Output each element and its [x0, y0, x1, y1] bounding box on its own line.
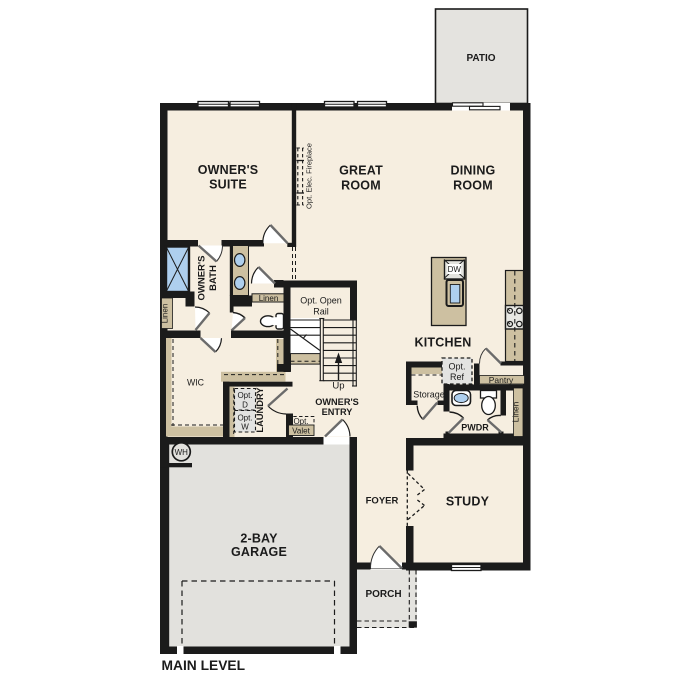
- svg-text:OWNER'S: OWNER'S: [197, 255, 208, 300]
- svg-text:WH: WH: [175, 448, 189, 457]
- svg-text:Opt.: Opt.: [237, 414, 252, 423]
- svg-text:GREAT: GREAT: [339, 164, 383, 178]
- svg-text:SUITE: SUITE: [209, 178, 247, 192]
- svg-text:OWNER'S: OWNER'S: [315, 397, 359, 407]
- svg-text:Rail: Rail: [313, 307, 329, 317]
- svg-text:STUDY: STUDY: [446, 495, 490, 509]
- svg-text:Valet: Valet: [292, 427, 310, 436]
- svg-text:MAIN LEVEL: MAIN LEVEL: [162, 658, 246, 673]
- svg-text:PATIO: PATIO: [466, 53, 495, 64]
- svg-text:ENTRY: ENTRY: [322, 407, 353, 417]
- svg-text:Linen: Linen: [161, 304, 170, 324]
- svg-text:Opt.: Opt.: [448, 362, 465, 372]
- svg-text:Opt. Elec. Fireplace: Opt. Elec. Fireplace: [305, 143, 314, 209]
- svg-text:PWDR: PWDR: [461, 423, 489, 433]
- svg-text:Ref: Ref: [450, 372, 465, 382]
- svg-text:Up: Up: [332, 381, 344, 392]
- svg-text:DINING: DINING: [451, 164, 496, 178]
- svg-text:Storage: Storage: [413, 390, 445, 400]
- svg-text:KITCHEN: KITCHEN: [415, 336, 472, 350]
- svg-text:Opt.: Opt.: [293, 417, 308, 426]
- svg-text:2-BAY: 2-BAY: [240, 532, 278, 546]
- svg-text:WIC: WIC: [187, 378, 205, 388]
- svg-text:ROOM: ROOM: [453, 179, 493, 193]
- svg-text:BATH: BATH: [208, 265, 219, 291]
- svg-text:W: W: [241, 423, 249, 432]
- svg-text:LAUNDRY: LAUNDRY: [255, 387, 265, 433]
- svg-text:PORCH: PORCH: [365, 589, 401, 600]
- svg-text:OWNER'S: OWNER'S: [198, 163, 259, 177]
- svg-text:GARAGE: GARAGE: [231, 545, 287, 559]
- svg-text:DW: DW: [448, 265, 462, 274]
- svg-text:Linen: Linen: [511, 401, 521, 422]
- svg-text:Pantry: Pantry: [489, 375, 514, 385]
- svg-text:Opt. Open: Opt. Open: [300, 296, 342, 306]
- svg-text:ROOM: ROOM: [341, 179, 381, 193]
- svg-text:D: D: [242, 401, 248, 410]
- svg-text:Opt.: Opt.: [237, 391, 252, 400]
- svg-text:FOYER: FOYER: [366, 496, 399, 507]
- svg-text:Linen: Linen: [259, 294, 279, 303]
